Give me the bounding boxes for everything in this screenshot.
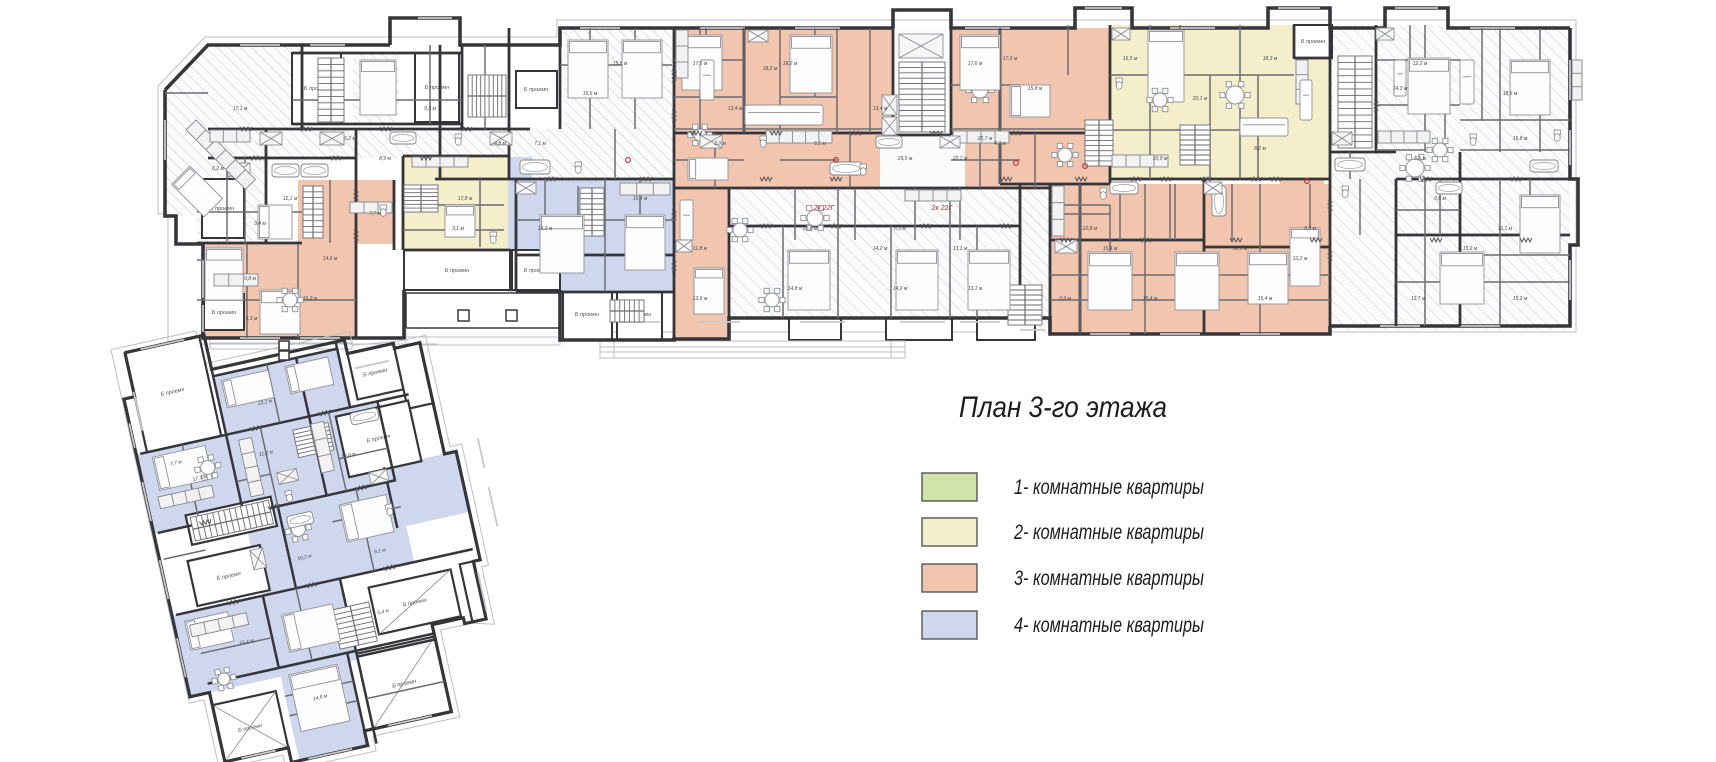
svg-text:10,2 м: 10,2 м [1293,256,1308,262]
svg-text:15,4 м: 15,4 м [1258,296,1273,302]
svg-text:18,3 м: 18,3 м [1263,56,1278,62]
svg-text:16,8 м: 16,8 м [1513,136,1528,142]
svg-text:4- комнатные квартиры: 4- комнатные квартиры [1014,614,1204,637]
svg-text:3- комнатные квартиры: 3- комнатные квартиры [1014,567,1204,590]
svg-text:9,8 м: 9,8 м [244,276,256,282]
svg-text:13,4 м: 13,4 м [873,106,888,112]
svg-text:10,9 м: 10,9 м [1153,156,1168,162]
svg-text:15,4 м: 15,4 м [1143,296,1158,302]
svg-text:12,2 м: 12,2 м [1413,61,1428,67]
svg-text:9,4 м: 9,4 м [254,221,266,227]
svg-text:11,8 м: 11,8 м [693,246,708,252]
svg-text:15,6 м: 15,6 м [613,61,628,67]
svg-text:13,7 м: 13,7 м [1411,296,1426,302]
svg-text:17,8 м: 17,8 м [458,196,473,202]
svg-text:9,9 м: 9,9 м [1059,296,1071,302]
svg-text:13,6 м: 13,6 м [693,296,708,302]
svg-text:9,3 м: 9,3 м [424,106,436,112]
svg-text:22,8 м: 22,8 м [802,226,818,232]
svg-text:8,2 м: 8,2 м [1254,146,1266,152]
svg-text:4,8 м: 4,8 м [494,141,506,147]
svg-text:16,3 м: 16,3 м [303,296,318,302]
svg-text:16,3 м: 16,3 м [243,316,258,322]
svg-text:6,3 м: 6,3 м [894,226,906,232]
svg-text:Б проемн: Б проемн [1301,39,1325,45]
svg-text:15,8 м: 15,8 м [1028,86,1043,92]
svg-text:Б проемн: Б проемн [524,87,548,93]
svg-text:Б проемн: Б проемн [445,268,469,274]
svg-text:3,1 м: 3,1 м [452,226,464,232]
svg-text:15,2 м: 15,2 м [1513,296,1528,302]
svg-text:15,4 м: 15,4 м [1103,246,1118,252]
svg-text:20,1 м: 20,1 м [1192,96,1208,102]
svg-text:8,9 м: 8,9 м [379,156,391,162]
svg-text:18,6 м: 18,6 м [1503,91,1518,97]
svg-text:16,4 м: 16,4 м [633,196,648,202]
svg-text:29,5 м: 29,5 м [897,156,913,162]
svg-text:13,1 м: 13,1 м [953,246,968,252]
svg-text:18,2 м: 18,2 м [763,66,778,72]
svg-text:13,1 м: 13,1 м [968,286,983,292]
svg-text:14,2 м: 14,2 м [873,246,888,252]
svg-text:22,8 м: 22,8 м [1082,226,1098,232]
svg-text:5,5 м: 5,5 м [1414,156,1426,162]
svg-text:5,2 м: 5,2 м [344,136,356,142]
svg-text:9,6 м: 9,6 м [1434,196,1446,202]
svg-text:4,2 м: 4,2 м [994,141,1006,147]
svg-text:18,2 м: 18,2 м [783,61,798,67]
svg-text:2к 22Г: 2к 22Г [813,205,836,212]
svg-text:17,6 м: 17,6 м [968,61,983,67]
svg-text:2к 22Г: 2к 22Г [931,205,954,212]
svg-text:14,6 м: 14,6 м [323,256,338,262]
svg-text:План 3-го этажа: План 3-го этажа [959,391,1167,424]
svg-text:22,7 м: 22,7 м [952,156,968,162]
svg-text:17,6 м: 17,6 м [693,61,708,67]
svg-text:15,6 м: 15,6 м [583,91,598,97]
svg-text:17,6 м: 17,6 м [1003,56,1018,62]
svg-text:14,2 м: 14,2 м [893,286,908,292]
svg-text:11,1 м: 11,1 м [1498,226,1513,232]
svg-text:1- комнатные квартиры: 1- комнатные квартиры [1014,476,1204,499]
svg-text:6,2 м: 6,2 м [212,166,224,172]
svg-text:12,2 м: 12,2 м [538,226,553,232]
svg-text:16,5 м: 16,5 м [1123,56,1138,62]
svg-text:Б проемн: Б проемн [425,85,449,91]
svg-text:22,7 м: 22,7 м [977,136,993,142]
svg-text:6,1 м: 6,1 м [814,141,826,147]
svg-text:2- комнатные квартиры: 2- комнатные квартиры [1013,521,1204,544]
svg-text:3,9 м: 3,9 м [714,141,726,147]
svg-text:7,7 м: 7,7 м [369,211,381,217]
svg-text:12,1 м: 12,1 м [283,196,298,202]
svg-text:14,3 м: 14,3 м [1393,86,1408,92]
svg-text:7,1 м: 7,1 м [534,141,546,147]
svg-text:12,9 м: 12,9 м [1233,246,1248,252]
svg-text:8,8 м: 8,8 м [1304,226,1316,232]
svg-text:15,2 м: 15,2 м [1463,246,1478,252]
svg-text:Б проемн: Б проемн [575,312,599,318]
svg-text:Б проемн: Б проемн [212,310,236,316]
svg-text:13,4 м: 13,4 м [728,106,743,112]
svg-text:17,1 м: 17,1 м [233,106,248,112]
svg-text:14,8 м: 14,8 м [788,286,803,292]
